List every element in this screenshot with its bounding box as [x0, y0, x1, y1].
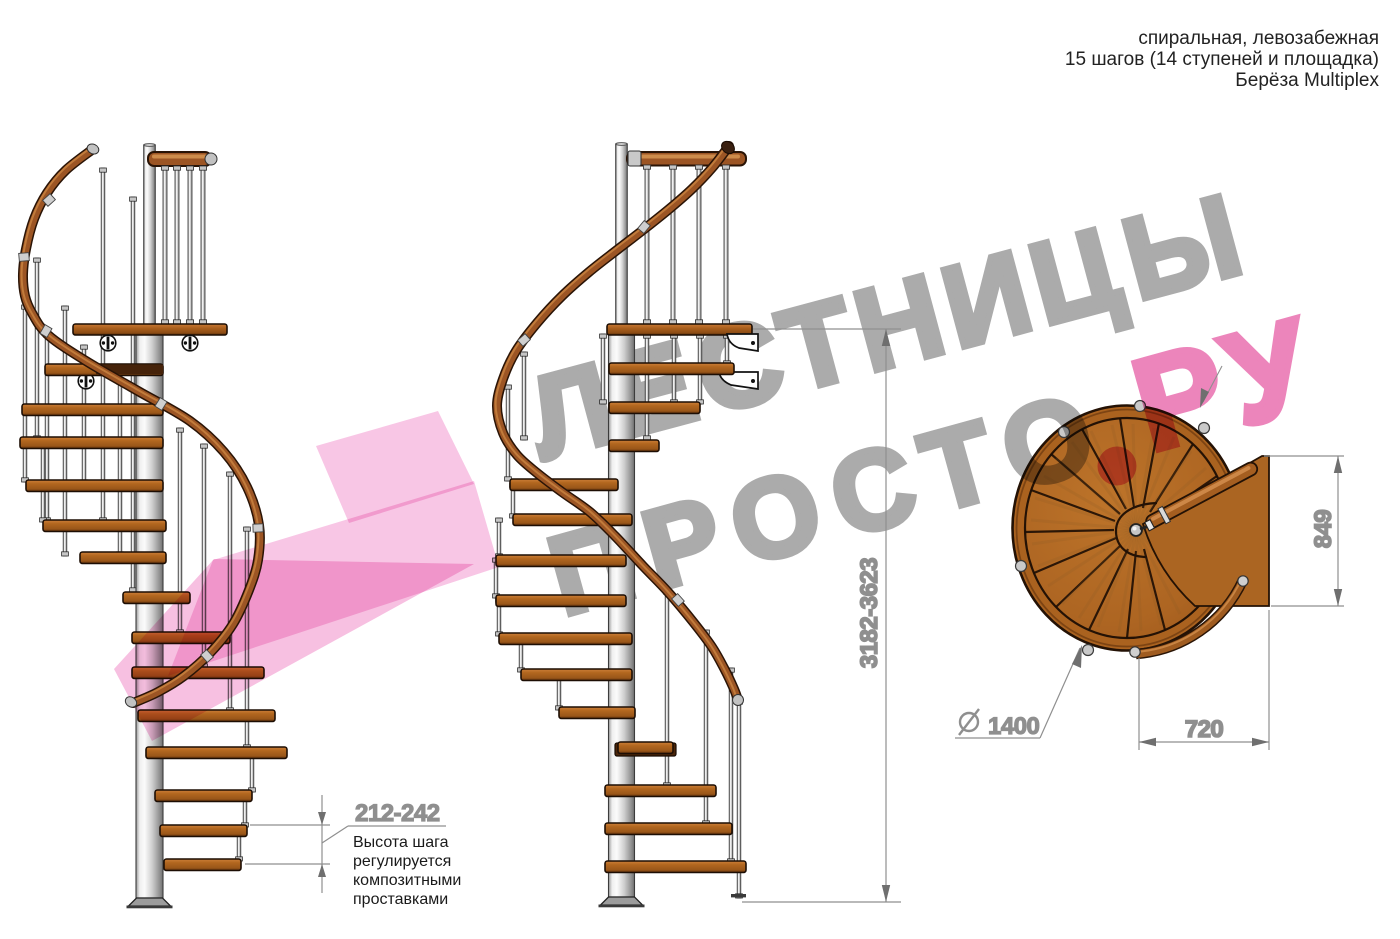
svg-text:регулируется: регулируется: [353, 853, 451, 870]
svg-text:849: 849: [1310, 510, 1337, 549]
svg-text:720: 720: [1185, 716, 1224, 743]
svg-text:Берёза Multiplex: Берёза Multiplex: [1235, 70, 1379, 91]
svg-text:212-242: 212-242: [355, 800, 440, 827]
svg-text:проставками: проставками: [353, 891, 448, 908]
svg-text:композитными: композитными: [353, 872, 461, 889]
svg-text:Высота шага: Высота шага: [353, 834, 449, 851]
svg-text:3182-3623: 3182-3623: [856, 558, 883, 668]
svg-text:спиральная, левозабежная: спиральная, левозабежная: [1138, 28, 1379, 49]
svg-text:1400: 1400: [988, 713, 1040, 740]
svg-text:15 шагов (14 ступеней и площад: 15 шагов (14 ступеней и площадка): [1065, 49, 1379, 70]
